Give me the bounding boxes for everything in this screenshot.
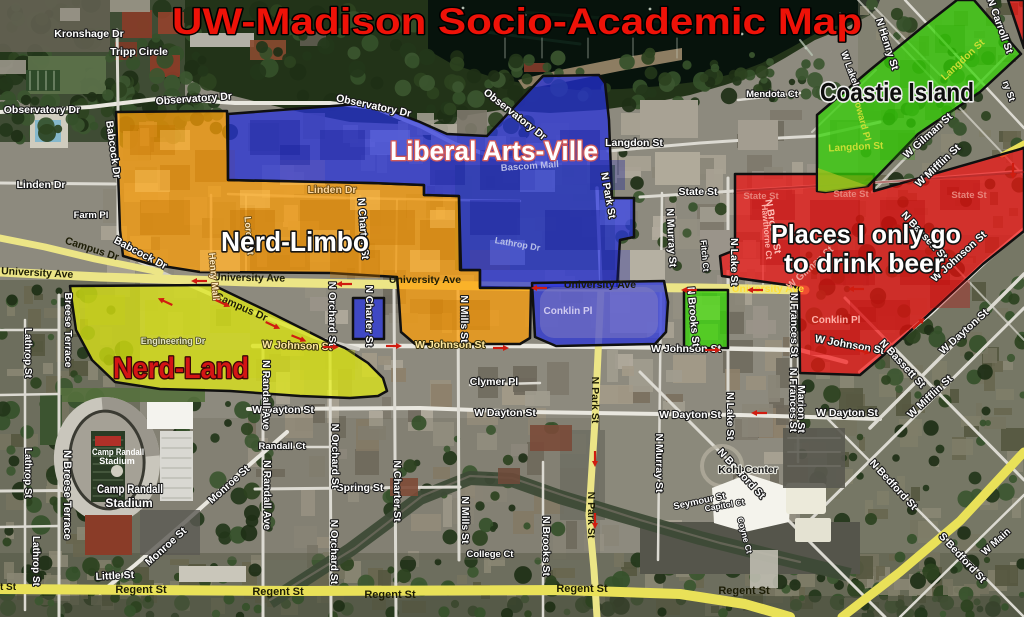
svg-text:UW-Madison Socio-Academic Map: UW-Madison Socio-Academic Map [172, 1, 862, 42]
svg-text:Regent St: Regent St [115, 584, 167, 596]
svg-text:Clymer Pl: Clymer Pl [470, 376, 519, 388]
svg-text:N Orchard St: N Orchard St [329, 424, 341, 489]
svg-text:N Mills St: N Mills St [459, 496, 471, 544]
svg-text:Farm Pl: Farm Pl [74, 210, 109, 221]
svg-text:N Orchard St: N Orchard St [328, 520, 340, 585]
svg-text:Regent St: Regent St [252, 586, 304, 598]
svg-text:Langdon St: Langdon St [605, 137, 663, 149]
svg-text:Regent St: Regent St [556, 583, 608, 595]
svg-text:Breese Terrace: Breese Terrace [62, 292, 74, 367]
svg-text:N Orchard St: N Orchard St [326, 282, 338, 347]
svg-text:Regent St: Regent St [718, 585, 770, 597]
svg-text:N Randall Ave: N Randall Ave [261, 460, 273, 530]
svg-text:Liberal Arts-Ville: Liberal Arts-Ville [390, 136, 598, 166]
svg-text:N Brooks St: N Brooks St [540, 516, 552, 577]
svg-text:N Lake St: N Lake St [724, 392, 736, 440]
svg-text:Randall Ct: Randall Ct [259, 441, 307, 452]
svg-text:Conklin Pl: Conklin Pl [812, 315, 861, 326]
svg-text:N Frances St: N Frances St [788, 293, 800, 358]
svg-text:to drink beer: to drink beer [784, 248, 944, 278]
svg-text:University Ave: University Ave [564, 279, 636, 291]
svg-text:N Charter St: N Charter St [391, 460, 403, 522]
svg-text:N Park St: N Park St [589, 377, 601, 424]
svg-text:Lathrop St: Lathrop St [30, 536, 41, 587]
svg-text:Linden Dr: Linden Dr [17, 179, 66, 191]
svg-text:t St: t St [0, 582, 17, 593]
svg-text:Observatory Dr: Observatory Dr [4, 104, 80, 116]
svg-text:Kronshage Dr: Kronshage Dr [54, 28, 123, 40]
svg-text:Tripp Circle: Tripp Circle [110, 46, 168, 58]
svg-text:Camp Randall: Camp Randall [97, 482, 163, 496]
svg-text:Lathrop St: Lathrop St [22, 328, 33, 379]
svg-text:N Mills St: N Mills St [458, 295, 470, 343]
svg-text:University Ave: University Ave [213, 271, 286, 284]
svg-text:N Randall Ave: N Randall Ave [260, 360, 272, 430]
svg-text:N Charter St: N Charter St [363, 285, 375, 347]
svg-text:Marion St: Marion St [795, 385, 807, 433]
svg-text:N Lake St: N Lake St [728, 238, 740, 286]
svg-text:Stadium: Stadium [105, 496, 152, 510]
svg-text:W Dayton St: W Dayton St [659, 409, 721, 421]
svg-text:W Johnson St: W Johnson St [262, 339, 333, 353]
svg-text:Engineering Dr: Engineering Dr [141, 336, 206, 346]
svg-text:Regent St: Regent St [364, 589, 416, 601]
svg-text:N Murray St: N Murray St [653, 434, 665, 493]
svg-text:Conklin Pl: Conklin Pl [544, 306, 593, 317]
svg-text:Lathrop St: Lathrop St [22, 448, 33, 499]
svg-text:State St: State St [833, 189, 869, 200]
svg-text:Nerd-Limbo: Nerd-Limbo [221, 226, 369, 257]
svg-text:W Dayton St: W Dayton St [816, 407, 878, 419]
svg-text:Stadium: Stadium [99, 456, 135, 466]
svg-text:N Breese Terrace: N Breese Terrace [61, 450, 73, 540]
svg-text:College Ct: College Ct [467, 549, 515, 560]
svg-text:Places I only go: Places I only go [771, 219, 961, 249]
svg-text:W Dayton St: W Dayton St [474, 407, 536, 419]
svg-text:Mendota Ct: Mendota Ct [746, 89, 799, 100]
svg-text:W Johnson St: W Johnson St [415, 339, 485, 351]
svg-text:State St: State St [678, 186, 718, 198]
svg-text:Nerd-Land: Nerd-Land [113, 352, 249, 385]
svg-text:Linden Dr: Linden Dr [308, 184, 357, 196]
svg-text:University Ave: University Ave [389, 274, 461, 286]
svg-text:Little St: Little St [95, 569, 135, 583]
svg-text:Spring St: Spring St [337, 482, 384, 494]
svg-text:State St: State St [951, 190, 987, 201]
svg-text:Kohl Center: Kohl Center [718, 464, 778, 476]
svg-text:Coastie Island: Coastie Island [820, 77, 974, 107]
